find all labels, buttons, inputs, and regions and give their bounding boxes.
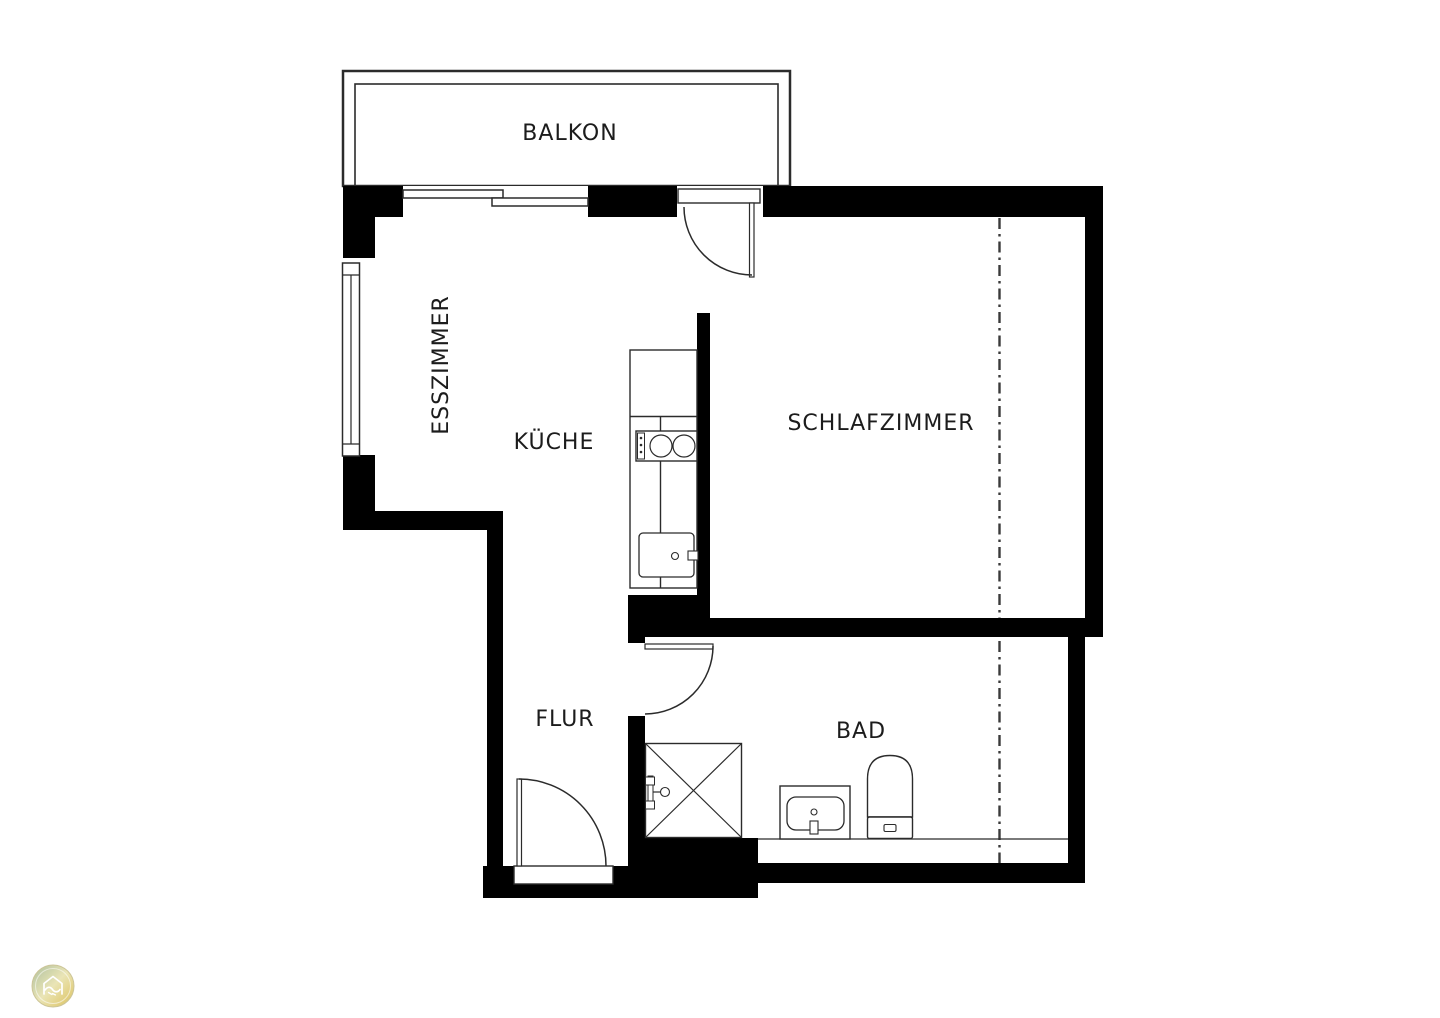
toilet-bowl (868, 756, 913, 818)
agency-logo (32, 965, 74, 1007)
balcony-door-leaf (750, 203, 755, 277)
wall-segment-flur-left (487, 511, 503, 898)
entrance-door-arc (519, 779, 606, 866)
wall-segment-right-step (1085, 618, 1100, 637)
sliding-door-panel (492, 198, 588, 206)
stove-knob (640, 437, 643, 440)
shower (646, 744, 742, 838)
sliding-door (403, 186, 588, 217)
room-label-flur: FLUR (535, 707, 594, 732)
stove-knob (640, 451, 643, 454)
balcony-door-arc (684, 207, 752, 275)
stove-cooktop (636, 431, 697, 461)
wall-segment-shower-base (628, 838, 758, 898)
room-label-balkon: BALKON (522, 121, 617, 146)
toilet (868, 756, 913, 839)
stove-knob (640, 444, 643, 447)
bathroom-door-opening (628, 643, 645, 716)
logo-circle (32, 965, 74, 1007)
wall-segment-bad-right (1068, 630, 1085, 883)
entrance-door (514, 779, 613, 884)
room-label-schlafzimmer: SCHLAFZIMMER (787, 411, 974, 436)
balcony-door (677, 186, 763, 277)
wall-segment-schlafzimmer-bad (645, 618, 1085, 637)
washbasin (780, 786, 850, 839)
shower-bracket (646, 801, 655, 809)
toilet-flush-button (884, 825, 896, 832)
floor-plan: BALKON ESSZIMMER KÜCHE SCHLAFZIMMER FLUR… (0, 0, 1440, 1018)
room-label-bad: BAD (836, 719, 886, 744)
bathroom-door (628, 643, 713, 716)
kitchen-sink (639, 533, 698, 577)
balcony-door-slab (678, 189, 760, 203)
shower-bracket (646, 777, 655, 785)
kitchen-unit (630, 350, 698, 588)
floor-plan-page: BALKON ESSZIMMER KÜCHE SCHLAFZIMMER FLUR… (0, 0, 1440, 1018)
shower-head-icon (661, 788, 670, 797)
wall-segment-kitchen-schlafzimmer (697, 313, 710, 628)
bathroom-door-arc (645, 646, 713, 714)
room-label-esszimmer: ESSZIMMER (429, 295, 454, 435)
kitchen-sink-basin (639, 533, 694, 577)
bathroom-fixtures (646, 744, 1069, 840)
sliding-door-panel (403, 190, 503, 198)
washbasin-faucet (810, 821, 818, 834)
entrance-door-threshold (514, 866, 613, 884)
kitchen-sink-faucet (688, 551, 698, 560)
wall-segment-right-outer (1085, 186, 1103, 637)
wall-segment-esszimmer-bottom (343, 511, 503, 530)
entrance-door-leaf (517, 779, 522, 866)
room-label-kueche: KÜCHE (514, 429, 595, 455)
bathroom-door-leaf (645, 644, 713, 649)
window (343, 258, 376, 456)
